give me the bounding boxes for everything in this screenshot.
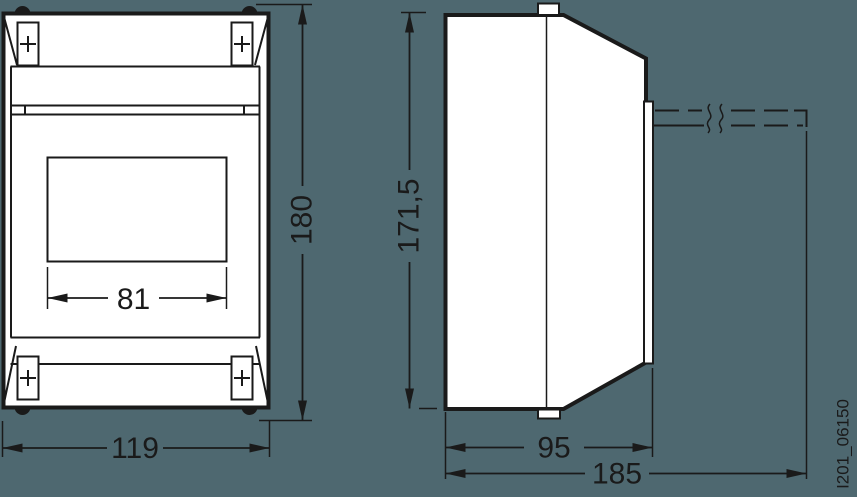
dimension-front-width: 119 [3,421,270,465]
side-tab-bottom [538,410,560,419]
arrowhead-up-icon [405,13,414,33]
dimension-label: 119 [111,432,159,465]
break-mark-icon [719,104,722,133]
module-window [48,158,227,262]
drawing-svg: 81 119 180 171,5 [0,0,857,497]
dimension-label: 185 [592,458,642,491]
side-view [446,4,807,419]
drawing-code-label: I201_06150 [834,399,853,489]
arrowhead-right-icon [633,443,653,452]
dimension-label: 171,5 [393,178,426,253]
arrowhead-right-icon [250,444,270,453]
technical-drawing-enclosure: 81 119 180 171,5 [0,0,857,497]
front-rail-strip [644,102,653,364]
mounting-rail-broken [654,104,807,133]
arrowhead-down-icon [298,401,307,421]
arrowhead-right-icon [787,469,807,478]
arrowhead-left-icon [446,469,466,478]
dimension-label: 180 [286,195,319,245]
dimension-label: 81 [117,283,150,316]
arrowhead-down-icon [405,389,414,409]
dimension-side-height: 171,5 [393,13,438,409]
arrowhead-left-icon [446,443,466,452]
break-mark-icon [707,104,710,133]
side-tab-top [538,4,559,16]
front-view [4,6,269,415]
arrowhead-up-icon [298,5,307,25]
arrowhead-left-icon [3,444,23,453]
dimension-label: 95 [537,432,570,465]
